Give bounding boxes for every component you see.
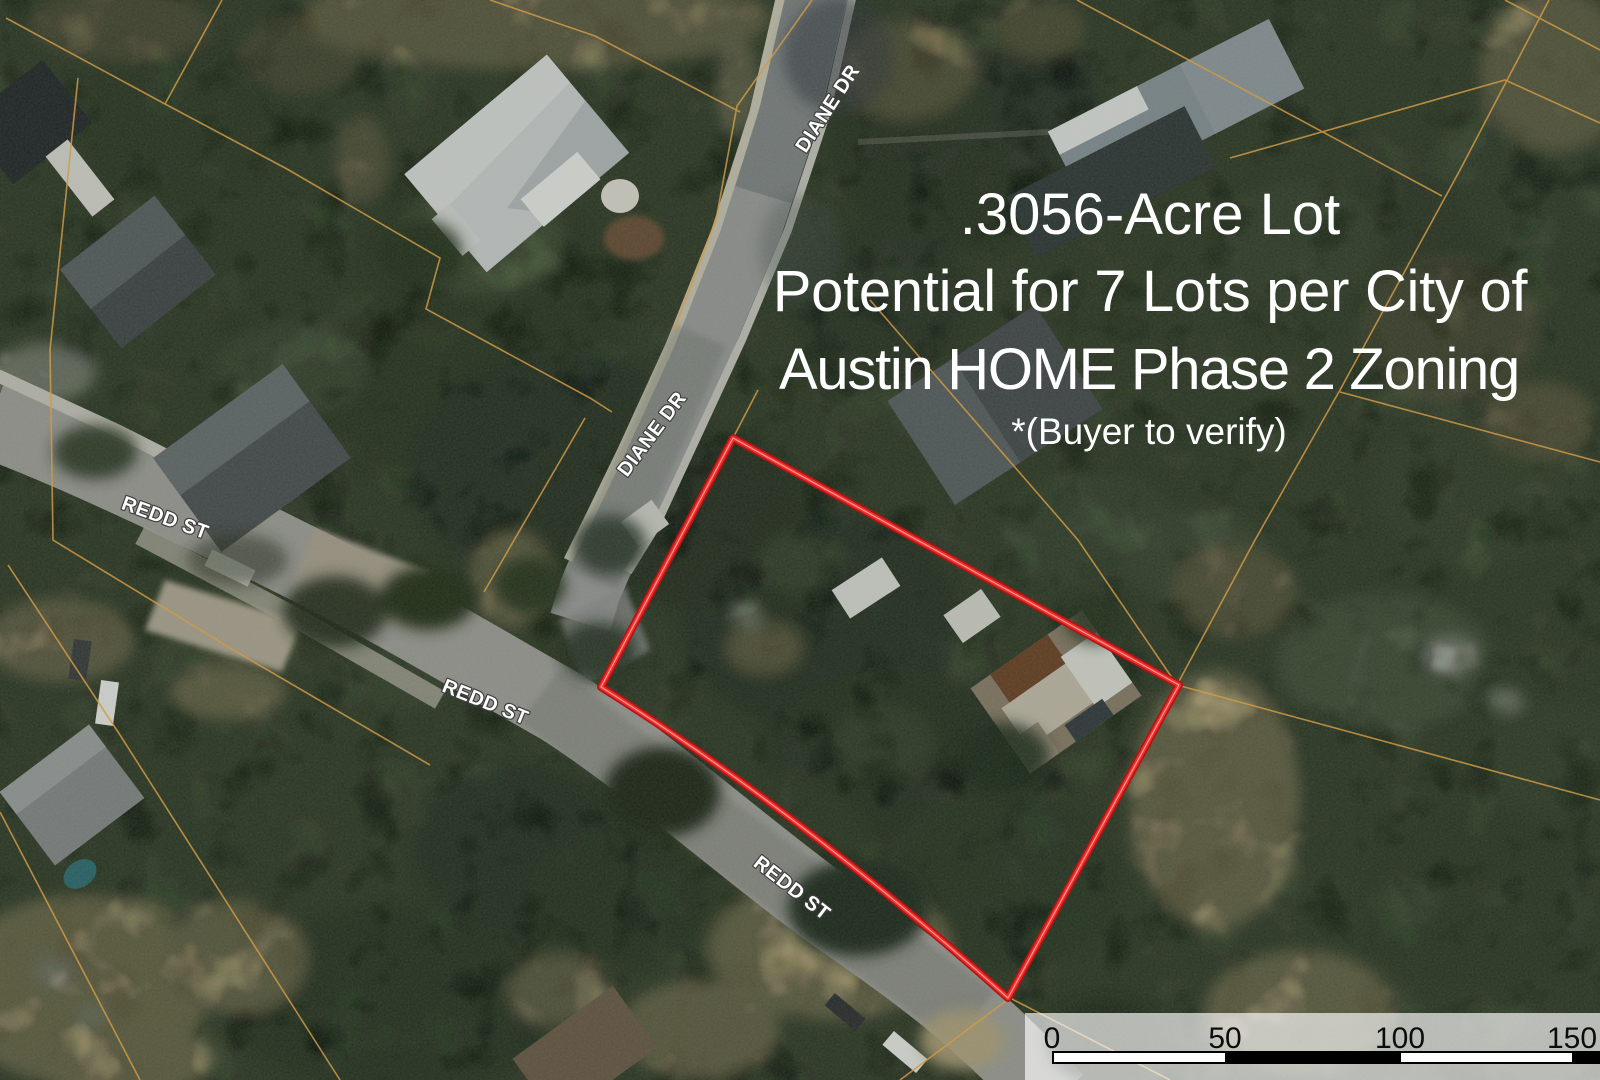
svg-text:50: 50 [1208, 1022, 1241, 1055]
svg-text:Potential for 7 Lots per City: Potential for 7 Lots per City of [773, 259, 1529, 324]
svg-text:.3056-Acre Lot: .3056-Acre Lot [960, 182, 1340, 247]
svg-text:Austin HOME Phase 2 Zoning: Austin HOME Phase 2 Zoning [779, 337, 1519, 402]
svg-text:*(Buyer to verify): *(Buyer to verify) [1011, 411, 1287, 452]
svg-text:150: 150 [1547, 1022, 1597, 1055]
svg-text:100: 100 [1375, 1022, 1425, 1055]
svg-text:0: 0 [1044, 1022, 1061, 1055]
